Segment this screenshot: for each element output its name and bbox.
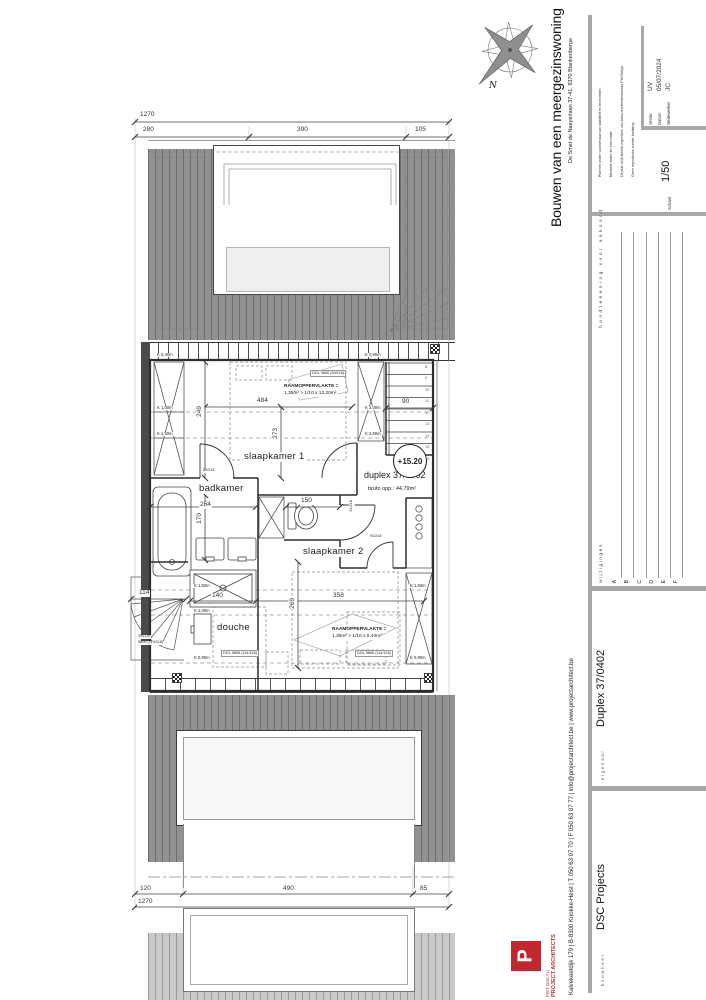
knee-height-label: K 2,50m: [364, 432, 382, 436]
revision-row-line: [682, 232, 683, 578]
window-ref-label: DGL 9806 (94/118): [310, 370, 346, 377]
medewerker-value: JC: [664, 83, 673, 91]
revision-letter: A: [612, 580, 619, 583]
knee-height-label: K 0,90m: [409, 656, 427, 660]
dim-label: 1270: [139, 112, 155, 119]
disclaimer-line: Plannen onder voorbehoud van stabiliteit…: [595, 53, 606, 177]
stair-number: 8: [425, 364, 427, 369]
disclaimer-line: Meubels louter ter informatie.: [606, 53, 617, 177]
window-area-note: 1,35m² > 1/10 x 12,20m²: [283, 392, 337, 397]
roof-dashed-details: [150, 152, 453, 331]
sanitary-fixtures: [153, 487, 318, 644]
shower-tray-icon: [190, 570, 256, 607]
velux-ref-label: VELUX: [137, 635, 151, 639]
dim-label: 1270: [137, 899, 153, 906]
versie-label: Versie: [646, 91, 655, 125]
dim-label: 105: [414, 127, 427, 134]
door-size-label: 91/216: [349, 500, 355, 512]
knee-height-label: K 0,90m: [364, 353, 382, 357]
window-area-note: RAAMOPPERVLAKTE =: [283, 385, 339, 390]
knee-height-label: K 1,50m: [193, 584, 211, 588]
disclaimer-line: Geen reproductie zonder toelating.: [628, 53, 639, 177]
pillow: [300, 650, 340, 664]
revision-row-line: [646, 232, 647, 578]
dim-label: 264: [199, 502, 212, 509]
door-arc-slaapkamer1: [322, 443, 357, 478]
knee-height-contours: [151, 412, 432, 663]
knee-height-label: K 1,50m: [156, 432, 174, 436]
window-ref-label: DGL 9806 (114/118): [221, 650, 259, 657]
revision-letter: B: [624, 580, 631, 583]
window-area-note: 1,35m² > 1/10 x 9,40m²: [331, 635, 383, 640]
revision-row-line: [633, 232, 634, 578]
cabinet-icon: [191, 614, 211, 644]
stair-number: 14: [425, 433, 429, 438]
titleblock-divider: [588, 586, 706, 591]
compass-north-label: N: [488, 82, 498, 91]
terrace-railing: [224, 164, 396, 205]
stair-number: 15: [425, 444, 429, 449]
wardrobe: [406, 498, 432, 568]
knee-height-label: K 1,00m: [156, 406, 174, 410]
disclaimer-line: Dit plan blijft steeds eigendom van bvba…: [617, 53, 628, 177]
schaal-label: Schaal: [667, 182, 672, 210]
stair-number: 9: [425, 375, 427, 380]
versie-value: UV: [646, 82, 655, 91]
window-x-right: [358, 362, 384, 441]
door-arc-slaapkamer2: [367, 542, 393, 568]
firm-tagline: PROJECT ARCHITECTS: [551, 933, 558, 997]
titleblock-divider: [588, 212, 706, 216]
medewerker-label: Medewerker: [664, 91, 673, 125]
pillow: [266, 366, 292, 380]
knee-height-label: K 0,40m: [156, 353, 174, 357]
dim-label: 273: [272, 428, 281, 439]
revision-letter: C: [637, 580, 644, 584]
datum-value: 05/07/2024: [655, 58, 664, 91]
unit-area-label: bruto opp.: 44,79m²: [367, 487, 417, 493]
room-label-slaapkamer2: slaapkamer 2: [302, 547, 365, 557]
version-block: Versie UV Datum 05/07/2024 Medewerker JC: [646, 30, 674, 125]
eigenaar-label: eigenaar: [600, 744, 608, 780]
door-size-label: 91/216: [369, 535, 383, 539]
revision-row-line: [621, 232, 622, 578]
dim-label: 490: [282, 886, 295, 893]
door-size-label: 80/216: [202, 469, 216, 473]
schaal-value: 1/50: [660, 161, 672, 182]
stair-number: 10: [425, 387, 429, 392]
sink-icon: [228, 538, 256, 561]
dim-label: 358: [332, 593, 345, 600]
knee-height-label: K 1,50m: [409, 584, 427, 588]
datum-label: Datum: [655, 91, 664, 125]
revision-row-line: [658, 232, 659, 578]
window-ref-label: DGL 9806 (114/118): [355, 650, 393, 657]
titleblock-divider: [588, 786, 706, 791]
revision-letter: F: [673, 580, 680, 583]
level-marker: +15.20: [393, 444, 427, 478]
dim-label: 390: [296, 127, 309, 134]
scale-block: Schaal 1/50: [646, 140, 672, 210]
sink-icon: [196, 538, 224, 561]
revision-row-line: [670, 232, 671, 578]
firm-logo: P: [511, 941, 541, 971]
dim-label: 120: [139, 886, 152, 893]
eigenaar-value: Duplex 37/0402: [595, 645, 612, 727]
signature-heading: handtekening voor akkoord: [599, 228, 608, 328]
dim-label: 140: [211, 593, 224, 600]
stair-number: 13: [425, 421, 429, 426]
window-x-left: [154, 362, 184, 475]
compass-rose-icon: [462, 2, 558, 98]
bouwheer-label: bouwheer: [600, 950, 608, 986]
titleblock-divider: [588, 15, 592, 993]
shaft-x: [259, 497, 284, 538]
knee-height-label: K 1,00m: [193, 609, 211, 613]
knee-height-label: K 0,90m: [193, 656, 211, 660]
knee-height-label: K 2,00m: [364, 406, 382, 410]
firm-logo-letter: P: [516, 949, 536, 962]
room-label-douche: douche: [216, 623, 251, 633]
velux-ref-label: 9806 (114/118): [137, 641, 164, 645]
titleblock-divider: [641, 126, 706, 130]
dim-label: 114: [138, 590, 150, 597]
firm-name: PIET BAILYU: [544, 933, 551, 997]
drawing-sheet: N 1270 280 390 105 484 90 264 150 140 35…: [0, 0, 706, 1000]
revision-letter: D: [649, 580, 656, 584]
dim-label: 150: [300, 498, 313, 505]
room-label-slaapkamer1: slaapkamer 1: [243, 452, 306, 462]
firm-contact-line: Kalvekeetdijk 179 | B-8300 Knokke-Heist …: [569, 597, 578, 995]
stair-number: 11: [425, 398, 429, 403]
dim-label: 269: [289, 598, 298, 609]
room-label-badkamer: badkamer: [198, 484, 245, 494]
window-area-note: RAAMOPPERVLAKTE =: [331, 628, 387, 633]
dim-label: 170: [196, 513, 205, 524]
dim-label: 90: [401, 399, 410, 406]
revision-letter: E: [661, 580, 668, 583]
stair-number: 16: [425, 456, 429, 461]
dim-label: 249: [196, 406, 205, 417]
firm-name-block: PIET BAILYU PROJECT ARCHITECTS: [544, 933, 566, 997]
project-address: De Smet de Naeyerlaan 37-41, 8370 Blanke…: [568, 18, 577, 163]
changes-heading: wijzigingen: [599, 528, 608, 583]
titleblock-divider: [641, 26, 644, 128]
disclaimer-block: Plannen onder voorbehoud van stabiliteit…: [595, 53, 640, 177]
dim-label: 85: [419, 886, 428, 893]
bouwheer-value: DSC Projects: [595, 860, 612, 930]
dim-label: 484: [256, 398, 269, 405]
dim-label: 280: [142, 127, 155, 134]
stair-number: 12: [425, 410, 429, 415]
pillow: [236, 366, 262, 380]
